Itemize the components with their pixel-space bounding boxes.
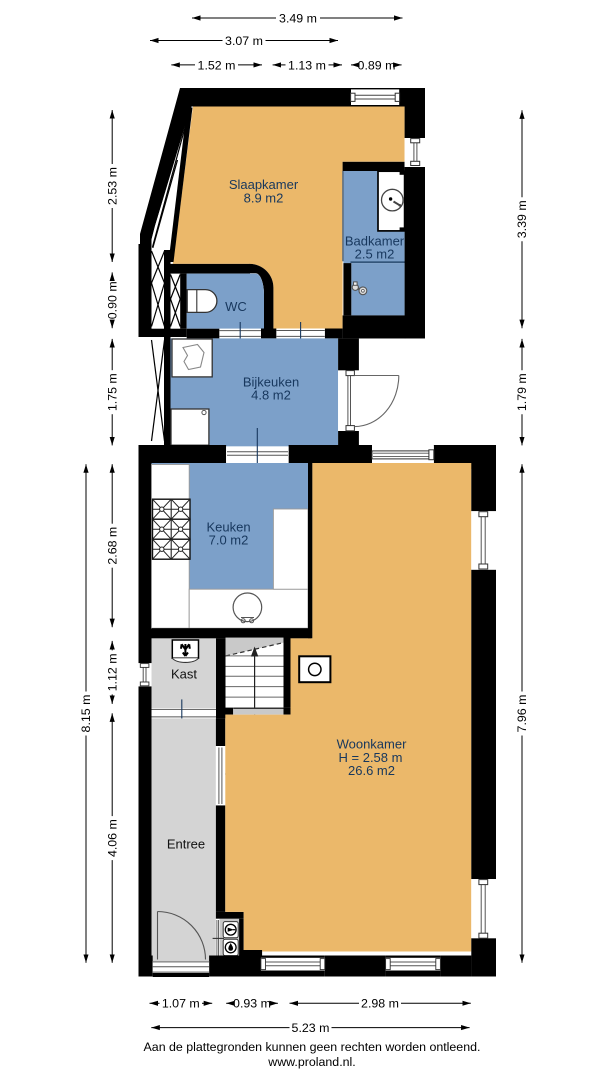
svg-text:1.79 m: 1.79 m [515, 373, 529, 411]
svg-text:5.23 m: 5.23 m [292, 1021, 330, 1035]
svg-text:1.07 m: 1.07 m [162, 997, 200, 1011]
svg-text:1.12 m: 1.12 m [105, 653, 119, 691]
svg-text:3.07 m: 3.07 m [225, 34, 263, 48]
svg-text:2.98 m: 2.98 m [361, 997, 399, 1011]
svg-text:2.53 m: 2.53 m [105, 167, 119, 205]
svg-text:4.06 m: 4.06 m [105, 819, 119, 857]
svg-text:26.6 m2: 26.6 m2 [348, 763, 395, 778]
svg-text:7.0 m2: 7.0 m2 [209, 533, 249, 548]
svg-text:WC: WC [225, 299, 247, 314]
svg-text:2.68 m: 2.68 m [105, 527, 119, 565]
svg-text:1.13 m: 1.13 m [288, 58, 326, 72]
svg-text:0.89 m: 0.89 m [358, 58, 396, 72]
svg-text:www.proland.nl.: www.proland.nl. [267, 1055, 355, 1069]
svg-text:3.39 m: 3.39 m [515, 200, 529, 238]
svg-text:3.49 m: 3.49 m [279, 12, 317, 26]
svg-text:1.52 m: 1.52 m [198, 58, 236, 72]
svg-text:1.75 m: 1.75 m [105, 373, 119, 411]
svg-text:2.5 m2: 2.5 m2 [355, 247, 395, 262]
svg-text:0.93 m: 0.93 m [233, 997, 271, 1011]
svg-text:Aan de plattegronden kunnen ge: Aan de plattegronden kunnen geen rechten… [144, 1040, 481, 1054]
svg-text:Kast: Kast [171, 666, 197, 681]
svg-text:8.15 m: 8.15 m [79, 695, 93, 733]
svg-text:8.9 m2: 8.9 m2 [244, 190, 284, 205]
svg-text:0.90 m: 0.90 m [105, 281, 119, 319]
svg-text:4.8 m2: 4.8 m2 [251, 388, 291, 403]
svg-text:Entree: Entree [167, 836, 205, 851]
svg-text:7.96 m: 7.96 m [515, 695, 529, 733]
